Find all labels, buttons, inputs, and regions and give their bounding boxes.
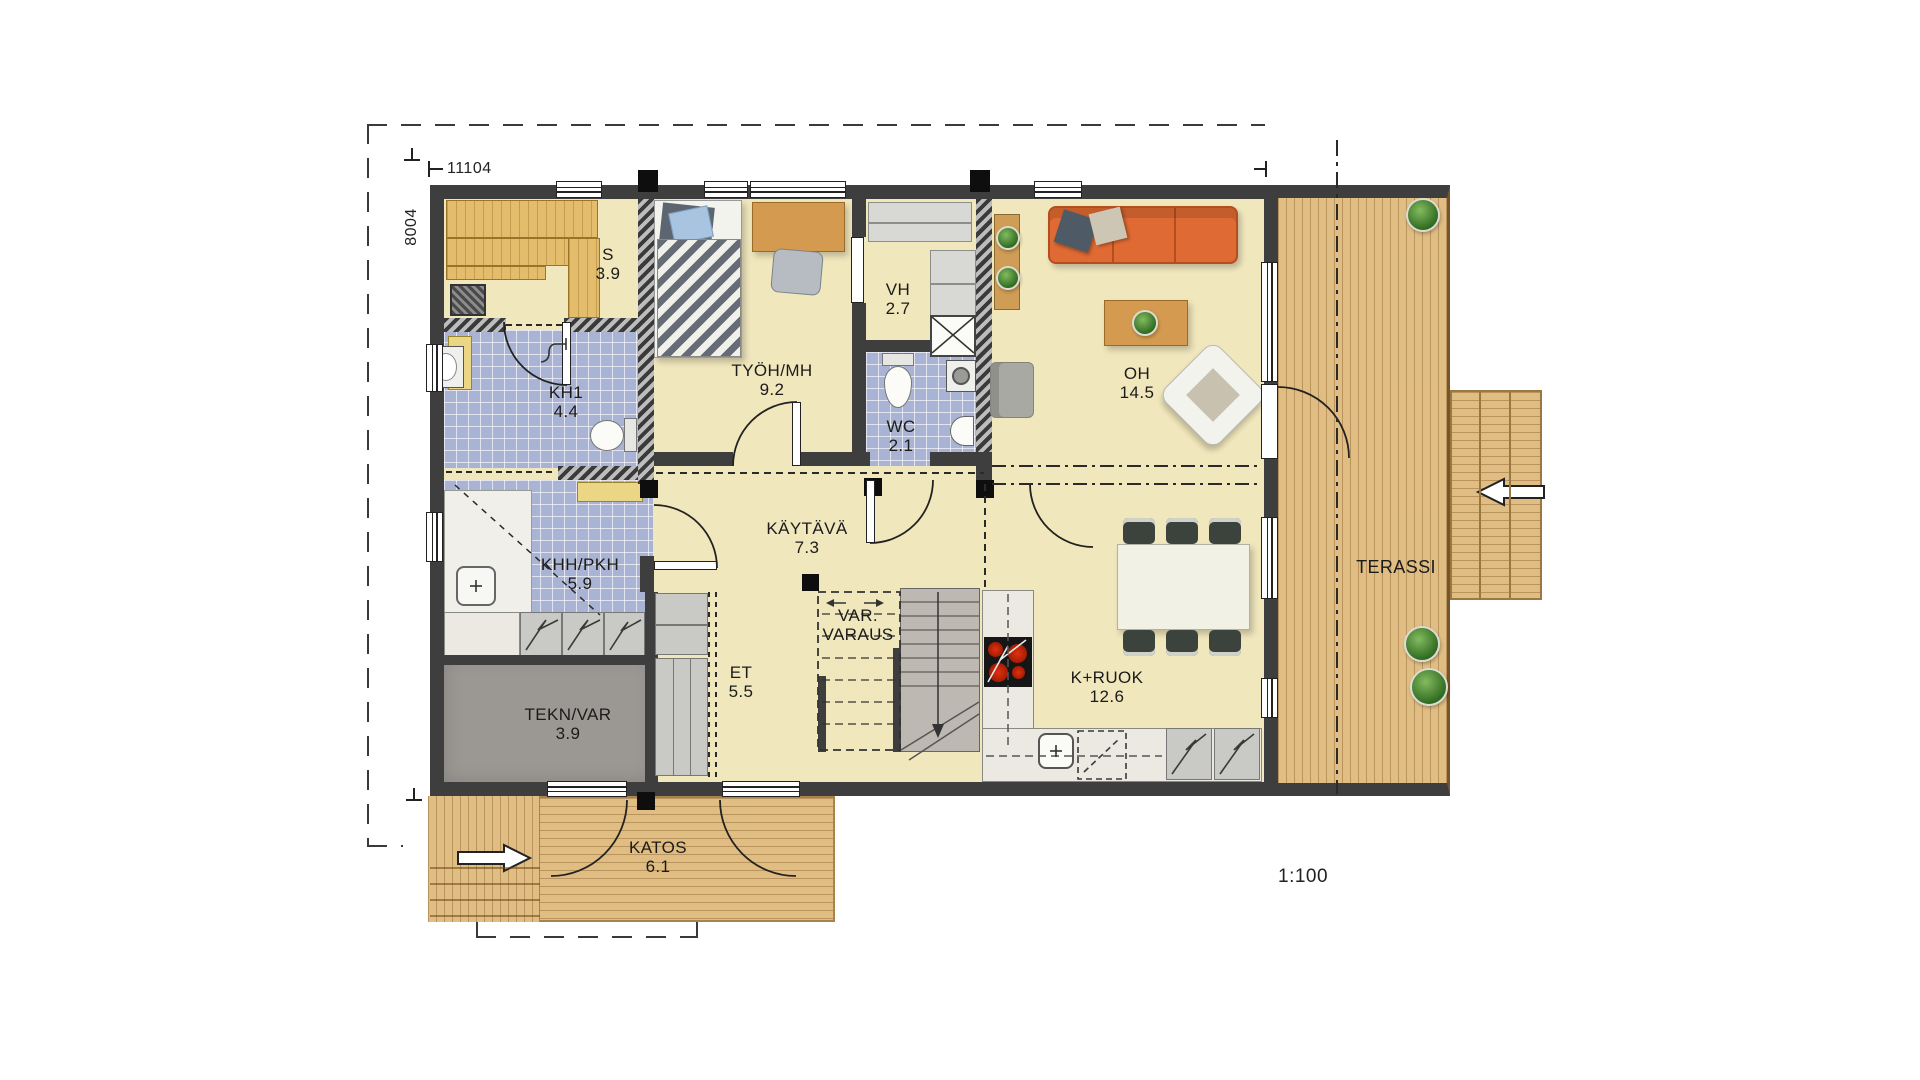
window-khh — [426, 512, 443, 562]
boundary-left — [367, 124, 369, 846]
wall-bed-vh-b — [852, 303, 866, 454]
wall-stair-stub-2 — [893, 648, 901, 752]
window-livingroom-top — [1034, 181, 1082, 198]
room-label-tekn-var: TEKN/VAR3.9 — [525, 705, 612, 743]
room-label-terassi: TERASSI — [1356, 558, 1436, 577]
room-label-kaytava: KÄYTÄVÄ7.3 — [766, 519, 847, 557]
room-label-katos: KATOS6.1 — [629, 838, 687, 876]
khh-door-leaf — [654, 561, 717, 570]
room-label-k-ruok: K+RUOK12.6 — [1071, 668, 1144, 706]
wall-sauna-kh1-right — [564, 318, 638, 332]
wall-sauna-right — [638, 199, 654, 484]
vh-shelf-top — [868, 202, 972, 242]
wall-wc-oh — [976, 199, 992, 454]
dining-chair — [1166, 630, 1198, 656]
terrace-plant-1 — [1406, 198, 1440, 232]
sauna-door-leaf — [562, 322, 571, 385]
column-porch — [637, 792, 655, 810]
utility-cabinet-4 — [604, 612, 645, 657]
sauna-bench-mid — [446, 238, 578, 266]
window-dining-1 — [1261, 517, 1278, 599]
et-entrance-door — [722, 781, 800, 797]
et-wardrobe-bottom — [655, 658, 708, 776]
dimension-width: 11104 — [447, 160, 492, 178]
scale-label: 1:100 — [1278, 866, 1328, 888]
column-stair — [802, 574, 819, 591]
window-sauna — [556, 181, 602, 198]
sauna-bench-top — [446, 200, 598, 238]
utility-cabinet-3 — [562, 612, 604, 657]
wall-hall-1 — [654, 452, 733, 466]
wc-door-leaf — [866, 480, 875, 543]
wc-basin — [950, 416, 974, 446]
wc-toilet-tank — [882, 353, 914, 366]
wall-khh-stub — [640, 556, 654, 592]
column-hall-3 — [976, 480, 994, 498]
window-bedroom-1 — [704, 181, 748, 198]
et-wardrobe-top — [655, 593, 708, 655]
wall-sauna-kh1-left — [444, 318, 506, 332]
wall-bed-vh-a — [852, 199, 866, 237]
window-dining-2 — [1261, 678, 1278, 718]
bedroom-door-leaf — [792, 402, 801, 466]
boundary-porch-bottom — [476, 936, 698, 938]
sauna-heater — [450, 284, 486, 316]
katos-steps-section — [428, 796, 540, 922]
boundary-bottom-nub — [367, 845, 403, 847]
khh-bench — [577, 482, 643, 502]
room-label-vh: VH2.7 — [886, 280, 911, 318]
khh-sink — [456, 566, 496, 606]
desk — [752, 202, 845, 252]
terrace-door — [1261, 384, 1278, 459]
dining-chair — [1123, 630, 1155, 656]
dining-chair — [1209, 630, 1241, 656]
bed — [654, 200, 742, 358]
stove — [984, 637, 1032, 687]
window-kh1 — [426, 344, 443, 392]
room-label-var-varaus: VAR.VARAUS — [822, 606, 893, 644]
window-livingroom-right — [1261, 262, 1278, 382]
terrace-plant-2 — [1404, 626, 1440, 662]
staircase — [900, 588, 980, 752]
sauna-bench-low — [446, 266, 546, 280]
wall-hall-2 — [797, 452, 870, 466]
kh1-toilet-bowl — [590, 420, 624, 451]
wall-stair-stub-1 — [818, 676, 826, 752]
dining-chair — [1123, 518, 1155, 544]
wc-washing-machine — [946, 360, 976, 392]
room-label-tyoh-mh: TYÖH/MH9.2 — [731, 361, 812, 399]
terrace-steps — [1450, 390, 1542, 600]
dimension-height: 8004 — [403, 208, 421, 246]
room-label-kh1: KH14.4 — [549, 383, 583, 421]
wall-tekn-top — [444, 655, 653, 665]
terrace-plant-3 — [1410, 668, 1448, 706]
fridge — [1166, 728, 1212, 780]
kh1-toilet-tank — [624, 418, 637, 452]
column-top-1 — [638, 170, 658, 192]
bed-duvet — [657, 239, 741, 357]
boundary-porch-right — [696, 922, 698, 936]
room-label-wc: WC2.1 — [886, 417, 915, 455]
column-top-2 — [970, 170, 990, 192]
gray-armchair — [990, 362, 1034, 418]
dining-chair — [1166, 518, 1198, 544]
freezer — [1214, 728, 1260, 780]
utility-cabinet-2 — [520, 612, 562, 657]
sideboard-plant-2 — [996, 266, 1020, 290]
tekn-katos-door — [547, 781, 627, 797]
dining-table — [1117, 544, 1250, 630]
room-label-sauna: S3.9 — [596, 245, 621, 283]
utility-cabinet-1 — [444, 612, 520, 657]
floor-plan-page: 11104 8004 1:100 S3.9 KH14.4 TYÖH/MH9.2 … — [0, 0, 1920, 1080]
wall-kh1-khh — [558, 466, 638, 480]
room-label-khh-pkh: KHH/PKH5.9 — [541, 555, 619, 593]
sideboard-plant-1 — [996, 226, 1020, 250]
kitchen-sink — [1038, 733, 1074, 769]
dining-chair — [1209, 518, 1241, 544]
room-label-oh: OH14.5 — [1120, 364, 1155, 402]
vh-door-leaf — [851, 237, 864, 303]
window-bedroom-2 — [750, 181, 846, 198]
boundary-top — [367, 124, 1265, 126]
vh-shelf-right — [930, 250, 976, 316]
coffee-table-plant — [1132, 310, 1158, 336]
room-label-et: ET5.5 — [729, 663, 754, 701]
column-hall-1 — [640, 480, 658, 498]
boundary-porch-left — [476, 922, 478, 936]
duct-shaft — [930, 315, 976, 357]
desk-chair — [770, 248, 824, 296]
